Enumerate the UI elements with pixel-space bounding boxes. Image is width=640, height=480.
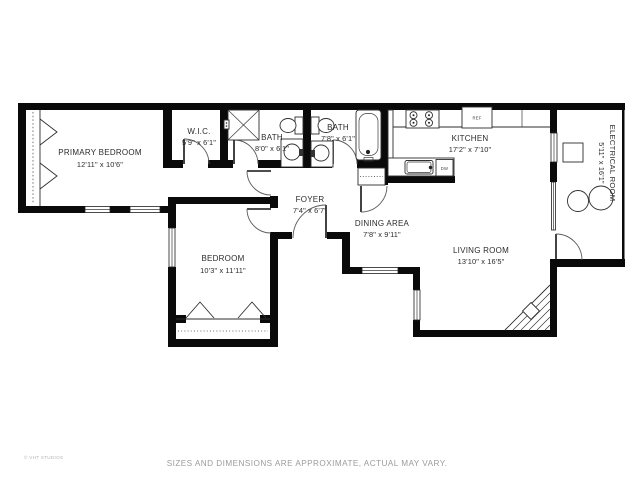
room-label-living: LIVING ROOM bbox=[453, 246, 509, 255]
kitchen-sink bbox=[405, 161, 433, 175]
room-label-foyer: FOYER bbox=[296, 195, 325, 204]
room-dims-dining: 7'8" x 9'11" bbox=[363, 230, 401, 239]
window bbox=[552, 182, 556, 230]
electrical-panel bbox=[563, 143, 583, 162]
floor-plan-page: REF DW bbox=[0, 0, 640, 480]
window bbox=[414, 290, 420, 320]
room-label-bath-1: BATH bbox=[261, 133, 283, 142]
window bbox=[362, 268, 398, 274]
room-dims-kitchen: 17'2" x 7'10" bbox=[449, 145, 492, 154]
room-label-bedroom: BEDROOM bbox=[201, 254, 244, 263]
room-dims-electrical: 5'11" x 16'1" bbox=[597, 142, 606, 184]
dishwasher: DW bbox=[436, 160, 453, 177]
bathtub bbox=[356, 110, 381, 161]
counter-return bbox=[388, 110, 393, 158]
sink bbox=[311, 141, 333, 167]
copyright-text: © VHT STUDIOS bbox=[24, 454, 63, 460]
dining-closet bbox=[358, 168, 385, 185]
room-dims-bath-2: 7'8" x 6'1" bbox=[321, 134, 355, 143]
window bbox=[85, 207, 110, 213]
shower bbox=[224, 110, 259, 140]
room-dims-bedroom: 10'3" x 11'11" bbox=[200, 266, 246, 275]
refrigerator: REF bbox=[462, 107, 492, 128]
room-label-primary-bedroom: PRIMARY BEDROOM bbox=[58, 148, 142, 157]
window bbox=[169, 228, 175, 267]
room-label-kitchen: KITCHEN bbox=[452, 134, 489, 143]
room-label-wic: W.I.C. bbox=[187, 127, 210, 136]
toilet bbox=[280, 117, 303, 134]
stove bbox=[406, 110, 439, 128]
refrigerator-label: REF bbox=[473, 116, 482, 121]
room-dims-primary-bedroom: 12'11" x 10'6" bbox=[77, 160, 123, 169]
room-label-electrical: ELECTRICAL ROOM bbox=[608, 125, 617, 202]
room-label-dining: DINING AREA bbox=[355, 219, 410, 228]
floor-plan: REF DW bbox=[0, 0, 640, 480]
water-heater bbox=[568, 191, 589, 212]
room-label-bath-2: BATH bbox=[327, 123, 349, 132]
room-dims-wic: 5'9" x 6'1" bbox=[182, 138, 216, 147]
background bbox=[0, 0, 640, 480]
room-dims-foyer: 7'4" x 6'7" bbox=[293, 206, 327, 215]
window bbox=[130, 207, 160, 213]
window bbox=[551, 133, 557, 162]
disclaimer-text: SIZES AND DIMENSIONS ARE APPROXIMATE, AC… bbox=[167, 459, 448, 468]
lower-counter: DW bbox=[388, 158, 454, 176]
room-dims-living: 13'10" x 16'5" bbox=[458, 257, 505, 266]
room-dims-bath-1: 8'0" x 6'1" bbox=[255, 144, 289, 153]
dishwasher-label: DW bbox=[441, 166, 448, 171]
